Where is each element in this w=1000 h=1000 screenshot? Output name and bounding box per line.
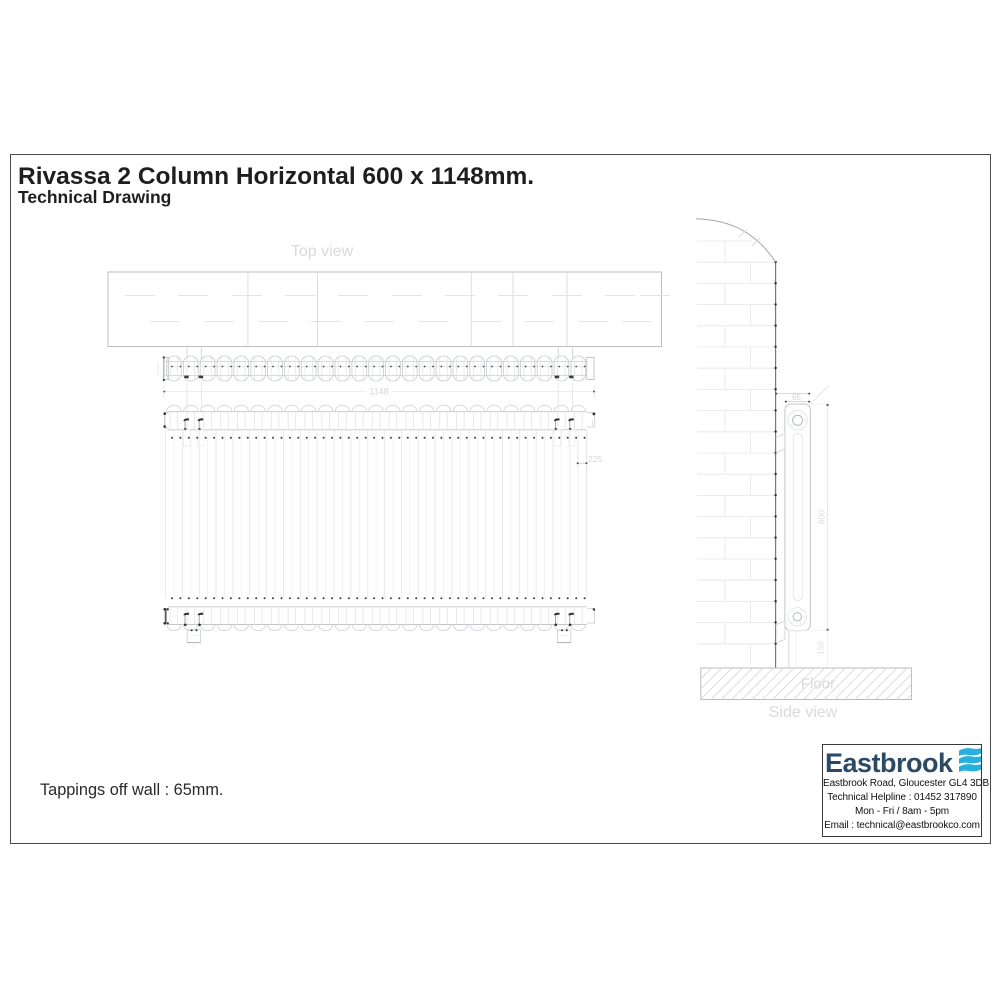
svg-text:Side view: Side view (769, 704, 838, 721)
svg-text:225: 225 (588, 454, 602, 464)
svg-text:150: 150 (817, 641, 826, 655)
svg-text:600: 600 (817, 510, 827, 524)
svg-text:1148: 1148 (369, 387, 388, 397)
svg-text:Floor: Floor (801, 676, 835, 693)
svg-text:Top view: Top view (291, 243, 354, 260)
svg-text:65: 65 (792, 393, 801, 402)
